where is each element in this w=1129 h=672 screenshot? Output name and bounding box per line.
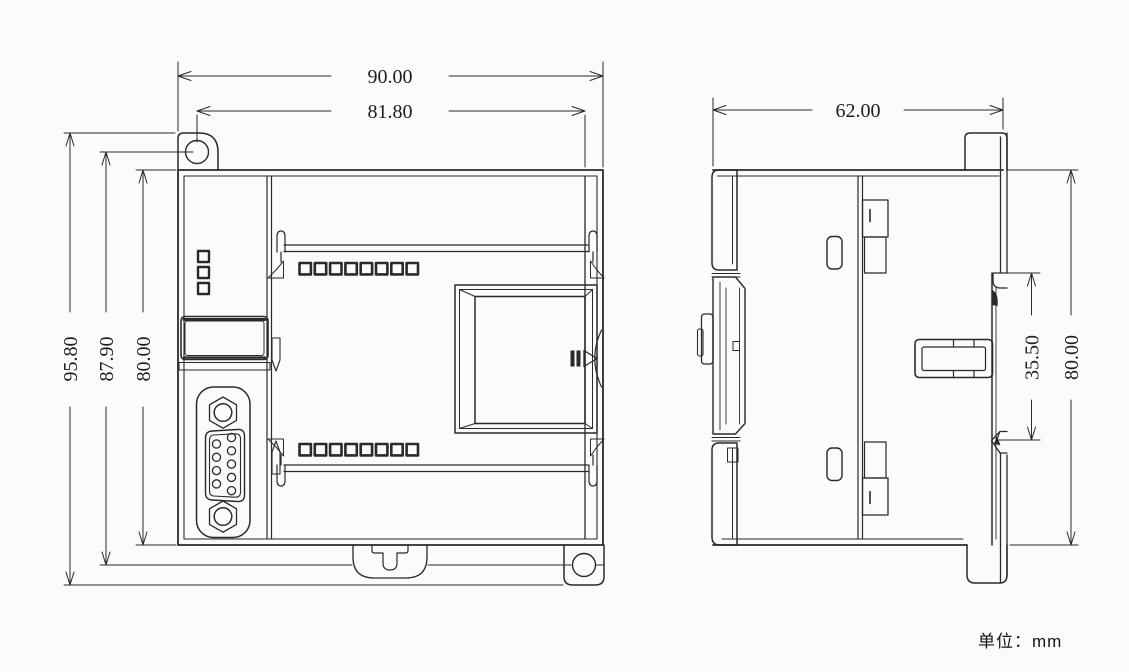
- dim-side-overall-depth: 62.00: [713, 98, 1003, 166]
- status-led: [198, 283, 209, 294]
- db9-shell-outer: [206, 429, 245, 501]
- led-square: [345, 444, 356, 455]
- latch-bottom: [272, 441, 280, 474]
- db9-pin: [227, 460, 235, 468]
- led-square: [407, 263, 418, 274]
- divider-latches: [272, 338, 280, 474]
- dim-front-body-height: 80.00: [133, 170, 176, 545]
- face-clips: [827, 237, 842, 481]
- door-flap: [179, 363, 270, 371]
- dim-label-rail-opening: 35.50: [1022, 335, 1044, 380]
- rail-strip-upper: [1001, 133, 1008, 273]
- db9-connector: [197, 387, 251, 538]
- clip-bottom: [827, 448, 842, 481]
- bar-post-left: [277, 455, 285, 486]
- bottom-terminal-bar: [268, 439, 604, 486]
- db9-pin: [227, 433, 235, 441]
- unit-label: 单位：mm: [978, 627, 1062, 652]
- db9-pin: [212, 440, 220, 448]
- dim-label-hole-spacing-x: 81.80: [368, 101, 413, 123]
- status-led: [198, 251, 209, 262]
- drawing-canvas: 90.00 81.80 95.80 87.90: [0, 0, 1129, 672]
- db9-pin: [212, 480, 220, 488]
- dim-label-overall-width: 90.00: [368, 66, 413, 88]
- bar-post-left: [277, 231, 285, 262]
- side-view: 62.00 35.50 80.00: [698, 98, 1084, 583]
- led-square: [376, 444, 387, 455]
- db9-pin: [212, 467, 220, 475]
- clip-top: [827, 237, 842, 270]
- bracket-top-a: [863, 200, 889, 237]
- status-led-column: [198, 251, 209, 294]
- front-divider: [858, 176, 863, 539]
- door-grip-bar: [571, 351, 575, 367]
- din-clip-latch-notch: [372, 545, 408, 570]
- led-square: [345, 263, 356, 274]
- slider-ticks: [954, 340, 975, 378]
- led-square: [315, 263, 326, 274]
- bracket-top-b: [865, 237, 887, 273]
- door-inner: [185, 321, 264, 356]
- top-cover-strip: [712, 170, 737, 270]
- db9-pin: [212, 453, 220, 461]
- led-square: [361, 444, 372, 455]
- card-slot-door: [179, 317, 270, 371]
- dim-front-hole-spacing-x: 81.80: [197, 101, 585, 167]
- led-square: [361, 263, 372, 274]
- db9-bezel: [197, 387, 251, 538]
- bar-post-right: [589, 455, 597, 486]
- db9-pin: [227, 473, 235, 481]
- bar-post-right: [589, 231, 597, 262]
- dim-label-hole-spacing-y: 87.90: [96, 337, 118, 382]
- din-clip-outline: [353, 545, 427, 578]
- dim-side-rail-opening: 35.50: [992, 273, 1044, 440]
- top-led-row: [300, 263, 419, 274]
- bar-lines: [284, 465, 588, 472]
- door-grip-bar: [577, 351, 581, 367]
- door-recess: [475, 297, 585, 424]
- rail-hook-top: [993, 273, 1007, 288]
- hinge-lines-bottom: [712, 438, 740, 442]
- side-front-profile: [698, 170, 746, 545]
- din-rail-bracket: [992, 133, 1008, 583]
- front-view: 90.00 81.80 95.80 87.90: [60, 62, 604, 585]
- led-square: [330, 444, 341, 455]
- db9-screw-hole-bottom: [214, 508, 232, 526]
- top-terminal-bar: [268, 231, 604, 278]
- status-led: [198, 267, 209, 278]
- db9-pin-holes: [212, 433, 235, 494]
- led-square: [315, 444, 326, 455]
- db9-shell-nub: [698, 329, 704, 356]
- door-outline: [181, 317, 268, 360]
- db9-screw-hole-top: [214, 404, 232, 422]
- technical-drawing: 90.00 81.80 95.80 87.90: [0, 0, 1129, 672]
- led-square: [391, 444, 402, 455]
- access-door: [455, 285, 602, 433]
- dim-front-hole-spacing-y: 87.90: [96, 152, 604, 565]
- db9-bezel-inner-lines: [720, 282, 740, 430]
- led-square: [300, 263, 311, 274]
- din-clip: [353, 545, 427, 578]
- latch-top: [272, 338, 280, 371]
- led-square: [300, 444, 311, 455]
- dim-label-front-body-height: 80.00: [133, 337, 155, 382]
- bezel-tick: [733, 342, 740, 351]
- led-square: [330, 263, 341, 274]
- bar-lines: [284, 245, 588, 252]
- bottom-cover-strip: [712, 443, 737, 545]
- rail-strip-lower: [1001, 453, 1008, 583]
- db9-pin: [227, 487, 235, 495]
- dim-label-side-body-height: 80.00: [1061, 335, 1083, 380]
- dim-label-overall-height: 95.80: [60, 337, 82, 382]
- bar-foot-left: [268, 261, 284, 278]
- led-square: [391, 263, 402, 274]
- dim-label-overall-depth: 62.00: [836, 100, 881, 122]
- bottom-led-row: [300, 444, 419, 455]
- db9-bezel-side: [713, 277, 745, 434]
- side-enclosure-body: [713, 170, 1003, 545]
- db9-pin: [227, 447, 235, 455]
- din-latch-slider: [915, 340, 993, 378]
- dim-side-body-height: 80.00: [1007, 170, 1083, 545]
- led-square: [376, 263, 387, 274]
- bracket-bottom-a: [863, 478, 889, 515]
- internal-brackets: [863, 200, 889, 515]
- dim-extension-lines: [100, 152, 604, 565]
- rail-wedge-top: [992, 290, 998, 306]
- slider-inner: [922, 347, 986, 371]
- mounting-hole-bottom-right: [573, 554, 596, 577]
- door-outer: [455, 285, 597, 433]
- bracket-bottom-b: [865, 442, 887, 478]
- led-square: [407, 444, 418, 455]
